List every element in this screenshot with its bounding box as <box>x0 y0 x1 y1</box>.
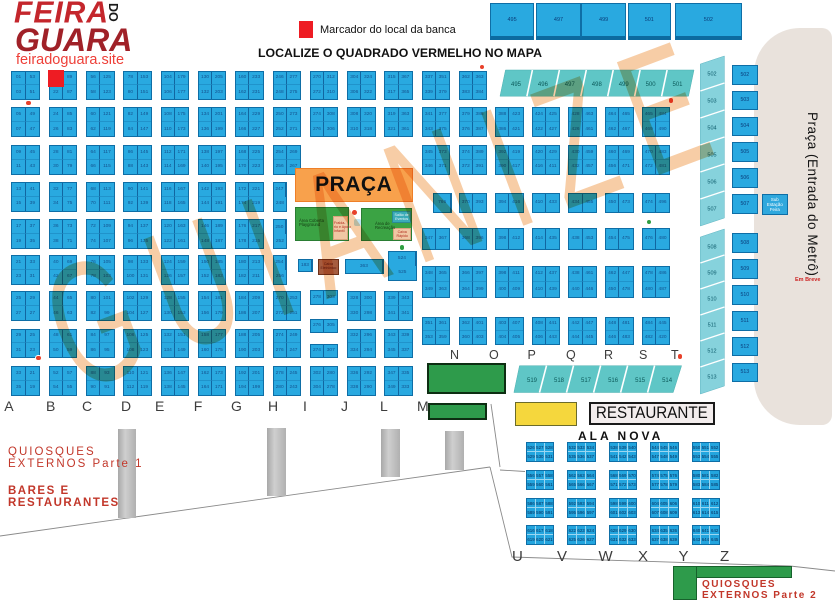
svg-text:505: 505 <box>707 153 716 159</box>
svg-text:503: 503 <box>707 99 716 105</box>
svg-text:508: 508 <box>707 245 716 251</box>
svg-text:500: 500 <box>646 82 657 88</box>
svg-text:516: 516 <box>608 378 619 384</box>
svg-text:512: 512 <box>707 349 716 355</box>
svg-text:515: 515 <box>635 378 646 384</box>
svg-text:497: 497 <box>565 82 576 88</box>
svg-text:511: 511 <box>708 323 717 329</box>
svg-text:507: 507 <box>707 207 716 213</box>
svg-text:498: 498 <box>592 82 603 88</box>
svg-text:496: 496 <box>538 82 549 88</box>
svg-text:501: 501 <box>672 82 683 88</box>
svg-text:499: 499 <box>619 82 630 88</box>
svg-text:506: 506 <box>707 180 716 186</box>
svg-text:513: 513 <box>707 375 716 381</box>
svg-text:517: 517 <box>581 378 592 384</box>
svg-text:518: 518 <box>554 378 565 384</box>
svg-text:514: 514 <box>662 378 673 384</box>
svg-text:509: 509 <box>707 271 716 277</box>
svg-text:504: 504 <box>707 126 716 132</box>
svg-text:519: 519 <box>527 378 538 384</box>
svg-text:502: 502 <box>707 72 716 78</box>
svg-text:510: 510 <box>707 297 716 303</box>
svg-text:495: 495 <box>511 82 522 88</box>
